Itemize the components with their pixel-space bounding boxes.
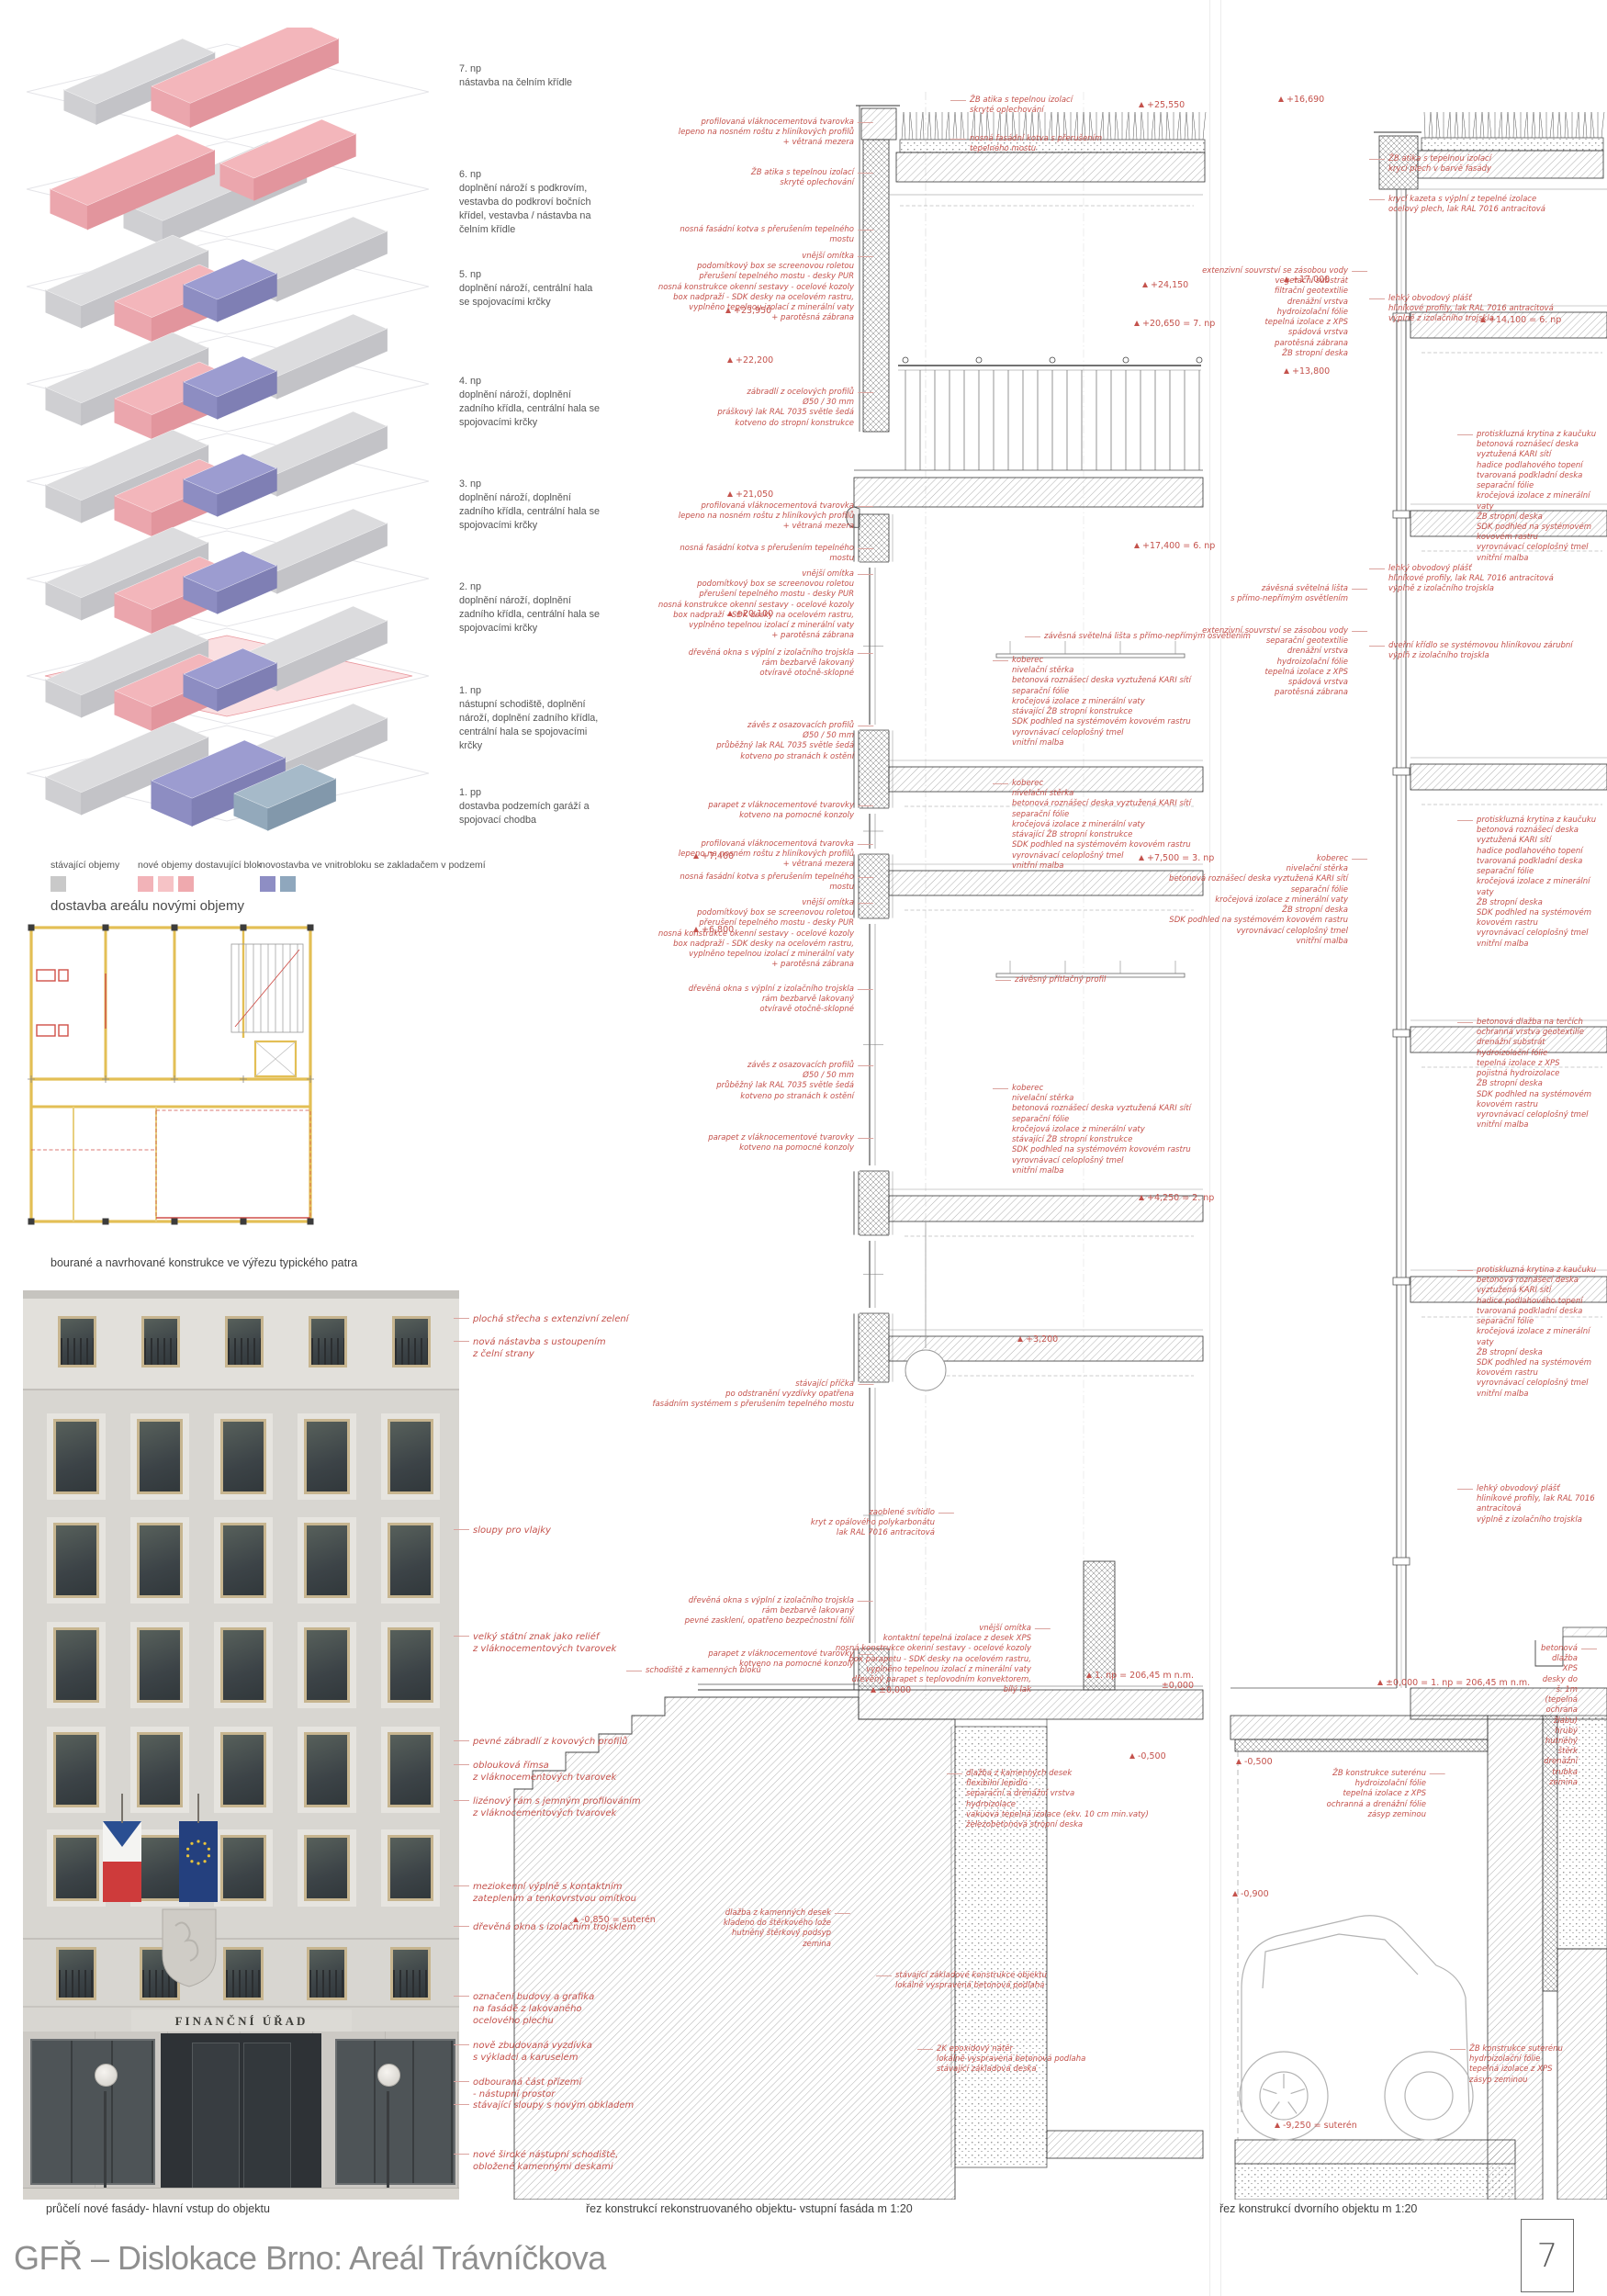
elevation-marker: +21,050 — [727, 489, 773, 500]
elevation-marker: +20,100 — [727, 608, 773, 619]
window — [220, 1523, 266, 1598]
window — [390, 1947, 431, 2000]
elevation-marker: +7,500 = 3. np — [1139, 852, 1214, 863]
elevation-marker: +7,400 — [693, 850, 734, 861]
window — [304, 1523, 350, 1598]
axonometric-diagram — [14, 28, 445, 850]
lamp-post — [104, 2091, 107, 2188]
elevation-marker: -9,250 = suterén — [1275, 2120, 1357, 2131]
window-railing — [395, 1338, 428, 1365]
axon-level — [27, 703, 429, 830]
lamp-globe — [95, 2064, 118, 2087]
window — [388, 1627, 433, 1703]
axon-level — [27, 28, 429, 140]
window — [225, 1316, 264, 1367]
storefront — [335, 2039, 455, 2185]
elevation-marker: +24,150 — [1142, 279, 1188, 290]
state-emblem — [161, 1908, 218, 1988]
elevation-marker: ±0,000 — [871, 1684, 911, 1695]
window-railing — [309, 1970, 344, 1998]
window — [137, 1627, 183, 1703]
legend-swatch — [51, 876, 66, 892]
cornice-line — [23, 1938, 459, 1940]
flag-pole — [121, 1794, 123, 1823]
legend-swatch — [158, 876, 174, 892]
elevation-marker: +22,200 — [727, 355, 773, 366]
elevation-marker: +17,400 = 6. np — [1134, 540, 1215, 551]
entrance-steps — [23, 2188, 459, 2200]
window — [388, 1419, 433, 1494]
window — [304, 1835, 350, 1901]
czech-flag — [103, 1821, 141, 1902]
plan-caption: bourané a navrhované konstrukce ve výřez… — [51, 1256, 357, 1269]
window — [137, 1419, 183, 1494]
storefront — [30, 2039, 155, 2185]
elevation-marker: +6,800 — [693, 924, 734, 935]
legend-item: nové objemy dostavující blok — [138, 860, 262, 895]
legend-caption: dostavba areálu novými objemy — [51, 898, 244, 914]
legend-swatch — [138, 876, 153, 892]
cornice-line — [23, 2006, 459, 2008]
window — [388, 1732, 433, 1807]
elevation-marker: 1. np = 206,45 m n.m. ±0,000 — [1086, 1670, 1194, 1691]
section-courtyard-drawing — [1221, 78, 1607, 2200]
entrance — [161, 2033, 321, 2188]
window-railing — [59, 1970, 94, 1998]
page-number: 7 — [1521, 2219, 1574, 2292]
elevation-marker: +16,690 — [1278, 94, 1324, 105]
window — [53, 1419, 99, 1494]
elevation-marker: +13,800 — [1284, 366, 1330, 377]
eu-flag — [179, 1821, 218, 1902]
door-leaf — [243, 2043, 291, 2189]
window-railing — [226, 1970, 261, 1998]
elevation-marker: +3,200 — [1017, 1334, 1058, 1345]
window — [53, 1627, 99, 1703]
elevation-marker: +25,550 — [1139, 99, 1185, 110]
window — [220, 1732, 266, 1807]
flag-pole — [197, 1794, 199, 1823]
elevation-marker: +20,650 = 7. np — [1134, 318, 1215, 329]
window-railing — [228, 1338, 261, 1365]
lamp-globe — [377, 2064, 400, 2087]
elevation-marker: -0,500 — [1129, 1750, 1166, 1761]
board-title: GFŘ – Dislokace Brno: Areál Trávníčkova — [14, 2239, 606, 2278]
legend-swatch — [280, 876, 296, 892]
legend-swatch — [260, 876, 275, 892]
window — [220, 1419, 266, 1494]
window — [309, 1316, 347, 1367]
window — [220, 1627, 266, 1703]
window-railing — [311, 1338, 344, 1365]
presentation-board: 7. np nástavba na čelním křídle6. np dop… — [0, 0, 1607, 2296]
door-leaf — [192, 2043, 240, 2189]
window — [304, 1627, 350, 1703]
window — [137, 1835, 183, 1901]
elevation-marker: ±0,000 = 1. np = 206,45 m n.m. — [1377, 1677, 1530, 1688]
legend-swatch — [178, 876, 194, 892]
window — [137, 1523, 183, 1598]
window — [304, 1732, 350, 1807]
floor-plan-drawing — [18, 918, 326, 1240]
window-railing — [393, 1970, 428, 1998]
elevation-marker: -0,900 — [1232, 1888, 1269, 1899]
window — [223, 1947, 264, 2000]
building-sign: FINANČNÍ ÚŘAD — [131, 2009, 352, 2033]
elevation-marker: +4,250 = 2. np — [1139, 1192, 1214, 1203]
facade-render: FINANČNÍ ÚŘAD FINANČNÍ ÚŘAD ÚZEMNÍ PRACO… — [23, 1290, 459, 2200]
section-reconstructed-drawing — [510, 78, 1212, 2200]
elevation-marker: +17,000 — [1284, 274, 1330, 285]
window — [141, 1316, 180, 1367]
section1-caption: řez konstrukcí rekonstruovaného objektu-… — [586, 2202, 913, 2215]
elevation-marker: +14,100 = 6. np — [1480, 314, 1561, 325]
window — [392, 1316, 431, 1367]
window-railing — [144, 1338, 177, 1365]
window — [304, 1419, 350, 1494]
legend-item: stávající objemy — [51, 860, 119, 895]
elevation-marker: -0,850 = suterén — [573, 1914, 656, 1925]
lamp-post — [387, 2091, 389, 2188]
window — [53, 1732, 99, 1807]
window — [58, 1316, 96, 1367]
window — [56, 1947, 96, 2000]
legend-item: novostavba ve vnitrobloku se zakladačem … — [260, 860, 486, 895]
roof-edge — [23, 1290, 459, 1299]
window-railing — [61, 1338, 94, 1365]
section2-caption: řez konstrukcí dvorního objektu m 1:20 — [1219, 2202, 1417, 2215]
elevation-marker: -0,500 — [1236, 1756, 1273, 1767]
window — [137, 1732, 183, 1807]
window — [53, 1523, 99, 1598]
window — [220, 1835, 266, 1901]
window — [388, 1835, 433, 1901]
elevation-marker: +23,950 — [725, 305, 771, 316]
window — [388, 1523, 433, 1598]
facade-caption: průčelí nové fasády- hlavní vstup do obj… — [46, 2202, 270, 2215]
window — [307, 1947, 347, 2000]
window — [53, 1835, 99, 1901]
